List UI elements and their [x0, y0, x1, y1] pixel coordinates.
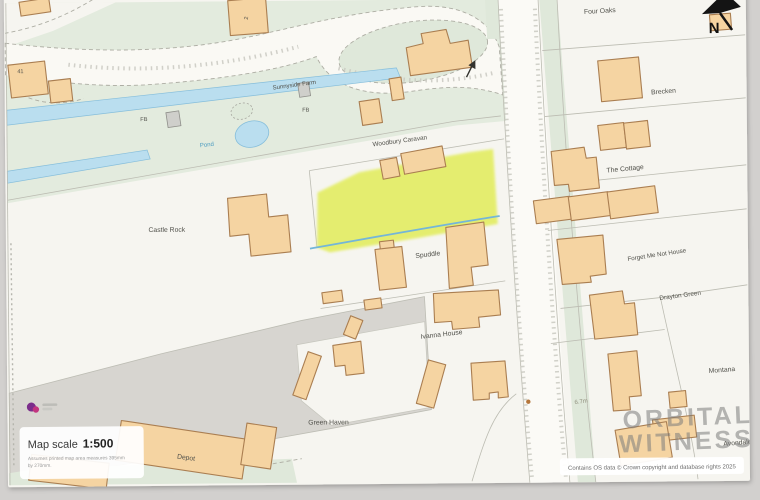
label-footbridge: FB — [140, 117, 147, 123]
map-canvas[interactable]: Four Oaks Brecken The Cottage Forget Me … — [0, 0, 760, 500]
building — [364, 298, 382, 310]
building — [533, 196, 572, 224]
scale-value: 1:500 — [83, 436, 114, 450]
building — [624, 120, 651, 149]
building — [568, 192, 611, 221]
scale-box — [20, 426, 144, 479]
scale-note-line2: by 270mm. — [28, 463, 52, 469]
building — [375, 246, 406, 290]
building — [380, 157, 400, 179]
label-green-haven: Green Haven — [308, 419, 349, 426]
copyright-note: Contains OS data © Crown copyright and d… — [560, 457, 744, 476]
scale-label: Map scale — [28, 439, 78, 451]
label-footbridge: FB — [302, 108, 309, 114]
building — [322, 290, 343, 304]
building-depot — [241, 423, 277, 469]
watermark: ORBITAL WITNESS — [617, 401, 754, 459]
building — [8, 61, 48, 98]
building — [359, 99, 382, 126]
building — [607, 186, 658, 219]
marker-dot — [526, 399, 530, 403]
building — [48, 79, 72, 103]
copyright-text: Contains OS data © Crown copyright and d… — [568, 463, 737, 471]
building-brecken — [598, 57, 643, 102]
label-plot-41: 41 — [17, 69, 23, 75]
building — [598, 123, 627, 151]
building — [471, 361, 508, 400]
north-letter: N — [709, 20, 720, 37]
label-plot-2: 2 — [244, 16, 250, 20]
watermark-line2: WITNESS — [618, 425, 754, 459]
map-viewer: Four Oaks Brecken The Cottage Forget Me … — [0, 0, 760, 500]
label-castle-rock: Castle Rock — [148, 227, 185, 234]
footbridge — [166, 111, 181, 128]
map-sheet: Four Oaks Brecken The Cottage Forget Me … — [4, 0, 755, 490]
scale-note-line1: Assumes printed map area measures 395mm — [28, 455, 125, 462]
building — [389, 77, 404, 101]
